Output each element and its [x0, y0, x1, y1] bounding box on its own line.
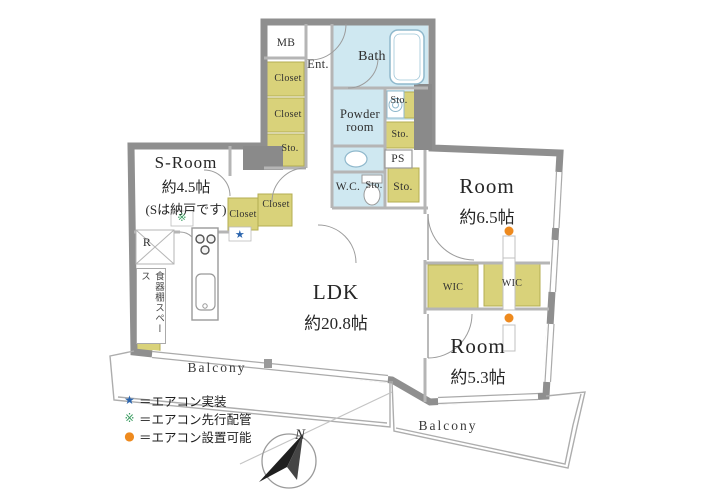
legend-label-possible: ＝エアコン設置可能 — [139, 427, 252, 446]
entrance-label: Ent. — [307, 58, 329, 71]
sto-label-washer: Sto. — [390, 96, 407, 106]
ps-label: PS — [391, 154, 404, 166]
closet-label-entry-1: Closet — [274, 74, 301, 84]
legend-item-aircon-piping: ※ ＝エアコン先行配管 — [122, 409, 252, 427]
north-label: N — [295, 427, 305, 444]
s-room-label: S-Room 約4.5帖 (Sは納戸です) — [146, 153, 227, 218]
dish-shelf-space-label: 食器棚スペース — [136, 268, 166, 344]
room65-name: Room — [459, 174, 514, 199]
ldk-label: LDK 約20.8帖 — [304, 280, 368, 334]
wic-label-2: WIC — [502, 279, 522, 289]
circle-icon: ● — [122, 429, 137, 443]
wc-label: W.C. — [336, 182, 360, 194]
aircon-installed-star-icon: ★ — [235, 229, 245, 240]
kitchen-sink-icon — [196, 274, 215, 310]
aircon-possible-dot-room53 — [505, 314, 514, 323]
s-room-name: S-Room — [146, 153, 227, 173]
legend-item-aircon-installed: ★ ＝エアコン実装 — [122, 391, 252, 409]
mb-label: MB — [277, 38, 296, 50]
legend-item-aircon-possible: ● ＝エアコン設置可能 — [122, 427, 252, 445]
floor-plan: MB Ent. Closet Closet Sto. Bath Powder r… — [0, 0, 701, 500]
aircon-piping-asterisk-icon: ※ — [177, 213, 187, 224]
bathtub-icon — [390, 30, 424, 84]
closet-label-entry-2: Closet — [274, 110, 301, 120]
s-room-area: 約4.5帖 — [146, 176, 227, 197]
powder-room-label-1: Powder — [340, 108, 380, 121]
balcony-label-right: Balcony — [419, 419, 478, 433]
room53-name: Room — [450, 334, 505, 359]
sto-label-toilet: Sto. — [365, 181, 382, 191]
ldk-area: 約20.8帖 — [304, 309, 368, 334]
room53-label: Room 約5.3帖 — [450, 334, 505, 388]
sink-basin-icon — [345, 151, 367, 167]
room65-area: 約6.5帖 — [459, 203, 514, 228]
powder-room-label-2: room — [346, 121, 374, 134]
sto-label-hall: Sto. — [393, 182, 412, 194]
sto-label-mid: Sto. — [391, 130, 408, 140]
ldk-name: LDK — [304, 280, 368, 305]
wic-label-1: WIC — [443, 283, 463, 293]
room65-label: Room 約6.5帖 — [459, 174, 514, 228]
closet-label-hall-2: Closet — [262, 200, 289, 210]
balcony-label-left: Balcony — [188, 361, 247, 375]
floor-plan-drawing — [0, 0, 701, 500]
star-icon: ★ — [122, 393, 137, 407]
bath-label: Bath — [358, 50, 386, 64]
refrigerator-label: R — [143, 236, 151, 248]
legend-label-piping: ＝エアコン先行配管 — [139, 409, 252, 428]
legend: ★ ＝エアコン実装 ※ ＝エアコン先行配管 ● ＝エアコン設置可能 — [122, 391, 252, 445]
sto-label-entry: Sto. — [281, 144, 298, 154]
refrigerator-space-icon — [136, 230, 174, 264]
closet-label-hall-1: Closet — [229, 210, 256, 220]
asterisk-icon: ※ — [122, 411, 137, 425]
room53-area: 約5.3帖 — [450, 363, 505, 388]
legend-label-installed: ＝エアコン実装 — [139, 391, 227, 410]
